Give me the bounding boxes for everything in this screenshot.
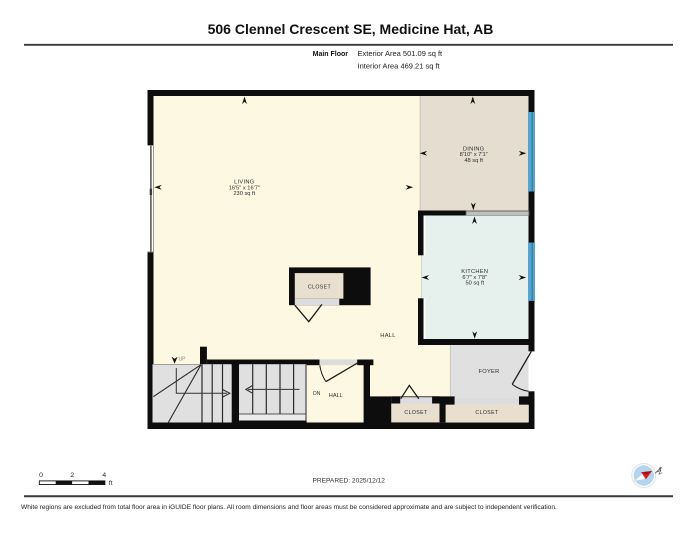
svg-text:CLOSET: CLOSET: [404, 410, 428, 416]
svg-text:FOYER: FOYER: [478, 369, 499, 375]
svg-text:PREPARED: 2025/12/12: PREPARED: 2025/12/12: [312, 478, 385, 485]
svg-text:DN: DN: [313, 391, 321, 397]
svg-text:4: 4: [102, 472, 106, 479]
svg-text:0: 0: [39, 472, 43, 479]
svg-text:CLOSET: CLOSET: [475, 410, 499, 416]
svg-text:N: N: [655, 470, 662, 477]
svg-text:Main Floor: Main Floor: [313, 51, 349, 58]
svg-text:Exterior Area 501.09 sq ft: Exterior Area 501.09 sq ft: [358, 49, 444, 58]
svg-text:UP: UP: [179, 356, 187, 362]
svg-text:HALL: HALL: [380, 333, 395, 339]
svg-text:48 sq ft: 48 sq ft: [464, 158, 483, 164]
svg-text:2: 2: [70, 472, 74, 479]
svg-text:White regions are excluded fro: White regions are excluded from total fl…: [21, 504, 557, 511]
svg-text:50 sq ft: 50 sq ft: [465, 281, 484, 287]
svg-text:506 Clennel Crescent SE, Medic: 506 Clennel Crescent SE, Medicine Hat, A…: [208, 21, 494, 37]
svg-text:230 sq ft: 230 sq ft: [233, 191, 255, 197]
svg-text:Interior Area 469.21 sq ft: Interior Area 469.21 sq ft: [358, 61, 441, 70]
svg-text:ft: ft: [109, 480, 113, 487]
svg-text:HALL: HALL: [329, 393, 343, 399]
svg-text:CLOSET: CLOSET: [308, 285, 332, 291]
